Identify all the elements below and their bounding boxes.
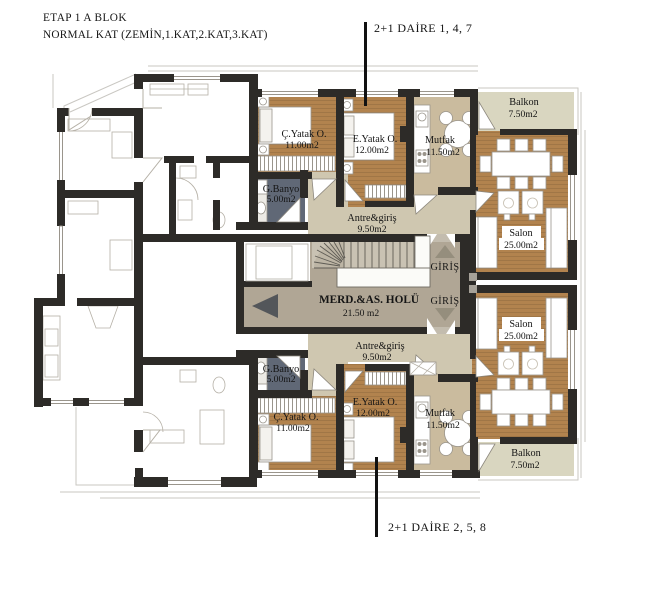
- svg-text:7.50m2: 7.50m2: [508, 109, 537, 120]
- svg-text:Balkon: Balkon: [511, 448, 540, 459]
- svg-text:11.50m2: 11.50m2: [426, 420, 460, 431]
- svg-text:E.Yatak O.: E.Yatak O.: [353, 397, 398, 408]
- svg-text:Ç.Yatak O.: Ç.Yatak O.: [281, 129, 326, 140]
- svg-text:ETAP 1 A BLOK: ETAP 1 A BLOK: [43, 12, 127, 24]
- svg-text:E.Yatak O.: E.Yatak O.: [353, 134, 398, 145]
- svg-text:Antre&giriş: Antre&giriş: [355, 341, 404, 352]
- svg-text:21.50 m2: 21.50 m2: [343, 308, 379, 319]
- svg-text:MERD.&AS. HOLÜ: MERD.&AS. HOLÜ: [319, 293, 419, 306]
- svg-text:25.00m2: 25.00m2: [504, 240, 538, 251]
- svg-text:Mutfak: Mutfak: [425, 408, 456, 419]
- svg-text:7.50m2: 7.50m2: [510, 460, 539, 471]
- svg-text:9.50m2: 9.50m2: [362, 352, 391, 363]
- svg-text:GİRİŞ: GİRİŞ: [430, 295, 459, 307]
- svg-text:NORMAL KAT (ZEMİN,1.KAT,2.KAT: NORMAL KAT (ZEMİN,1.KAT,2.KAT,3.KAT): [43, 29, 268, 41]
- svg-text:2+1 DAİRE 2, 5, 8: 2+1 DAİRE 2, 5, 8: [388, 520, 486, 534]
- svg-text:11.50m2: 11.50m2: [426, 147, 460, 158]
- svg-text:Balkon: Balkon: [509, 97, 538, 108]
- svg-text:Mutfak: Mutfak: [425, 135, 456, 146]
- svg-text:11.00m2: 11.00m2: [276, 423, 310, 434]
- svg-text:5.00m2: 5.00m2: [266, 374, 295, 385]
- svg-text:25.00m2: 25.00m2: [504, 331, 538, 342]
- svg-text:Ç.Yatak O.: Ç.Yatak O.: [273, 412, 318, 423]
- svg-text:Salon: Salon: [509, 319, 532, 330]
- svg-text:9.50m2: 9.50m2: [357, 224, 386, 235]
- svg-text:5.00m2: 5.00m2: [266, 194, 295, 205]
- svg-text:12.00m2: 12.00m2: [356, 408, 390, 419]
- svg-text:Salon: Salon: [509, 228, 532, 239]
- svg-text:GİRİŞ: GİRİŞ: [430, 261, 459, 273]
- svg-text:Antre&giriş: Antre&giriş: [347, 213, 396, 224]
- svg-text:11.00m2: 11.00m2: [285, 140, 319, 151]
- svg-text:12.00m2: 12.00m2: [355, 145, 389, 156]
- svg-text:2+1 DAİRE 1, 4, 7: 2+1 DAİRE 1, 4, 7: [374, 21, 472, 35]
